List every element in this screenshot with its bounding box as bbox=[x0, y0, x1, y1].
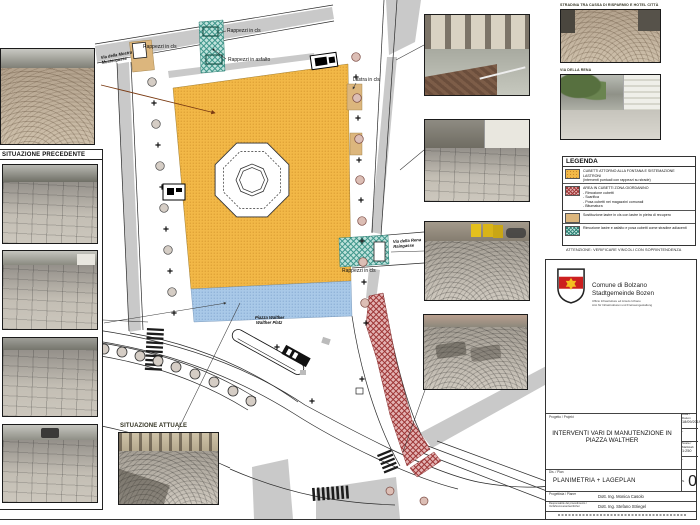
project-title: INTERVENTI VARI DI MANUTENZIONE IN PIAZZ… bbox=[552, 430, 672, 444]
photo-pavement bbox=[3, 265, 97, 329]
designer-row: Progettista / Planer Dott. Ing. Monica C… bbox=[546, 491, 698, 501]
legend-bullet: - Posa cubetti nei magazzini comunali bbox=[583, 200, 643, 204]
photo-right-4-cobbles bbox=[423, 314, 528, 390]
manager-row: Responsabile del procedimento / Verfahre… bbox=[546, 501, 698, 511]
situazione-precedente-title: SITUAZIONE PRECEDENTE bbox=[0, 150, 102, 160]
manager-value: Dott. Ing. Stefano Striegel bbox=[598, 504, 646, 509]
photo-pavement bbox=[1, 68, 94, 144]
project-label: Progetto / Projekt bbox=[549, 415, 574, 419]
photo-topleft-cobbles bbox=[0, 48, 95, 145]
arcade-scene bbox=[425, 15, 529, 49]
date-value: 18/09/2019 bbox=[682, 420, 698, 424]
photo-pavement bbox=[3, 182, 97, 243]
dark-wall-right bbox=[638, 10, 660, 31]
empty-cell-2: - bbox=[682, 457, 698, 468]
legend-item-cubetti: Rimozione lastre e asfalto e posa cubett… bbox=[563, 224, 695, 241]
scale-label: Scala / Maßstab bbox=[682, 442, 698, 449]
photo-scene bbox=[119, 433, 218, 451]
bolzano-coat-of-arms-icon bbox=[556, 268, 586, 304]
drawing-title: PLANIMETRIA + LAGEPLAN bbox=[553, 478, 636, 484]
drawing-label: Dis. / Plan bbox=[549, 470, 564, 474]
date-label: Data / Datum bbox=[682, 413, 698, 420]
number-cell: N. 0 bbox=[682, 469, 698, 491]
legend-note: ATTENZIONE: VERIFICARE VINCOLI CON SOPRI… bbox=[566, 248, 696, 252]
leader-dot bbox=[213, 49, 215, 51]
photo-right-3-bins bbox=[424, 221, 530, 301]
titleblock-divider bbox=[546, 511, 696, 512]
drawing-cell: Dis. / Plan PLANIMETRIA + LAGEPLAN bbox=[546, 469, 681, 491]
legend-item-title: Rimozione lastre e asfalto e posa cubett… bbox=[583, 226, 687, 230]
swatch-red-crosshatch bbox=[565, 186, 580, 196]
photo-stradina bbox=[560, 9, 661, 63]
manager-label: Responsabile del procedimento / Verfahre… bbox=[549, 502, 595, 508]
title-block: Comune di Bolzano Stadtgemeinde Bozen Uf… bbox=[545, 259, 697, 519]
street-via-rena-de: Raingasse bbox=[393, 242, 415, 248]
photo-right-2-pavement bbox=[424, 119, 530, 202]
dark-wall-left bbox=[561, 10, 575, 33]
photo-situazione-attuale bbox=[118, 432, 219, 505]
project-cell: Progetto / Projekt INTERVENTI VARI DI MA… bbox=[546, 413, 681, 469]
photo-precedente-4 bbox=[2, 424, 98, 503]
municipality-name-it: Comune di Bolzano bbox=[592, 282, 654, 290]
trees-bottom-row bbox=[99, 344, 256, 406]
kiosk-symbol-left bbox=[163, 184, 185, 200]
swatch-tan-solid bbox=[565, 213, 580, 223]
green-trees bbox=[561, 75, 606, 101]
number-value: 0 bbox=[688, 473, 697, 491]
label-rappezzi-cls-top: Rappezzi in cls bbox=[227, 28, 261, 34]
legend-bullet: - Rimozione cubetti bbox=[583, 191, 614, 195]
plan-sheet: Rappezzi in cls Rappezzi in cls Rappezzi… bbox=[0, 0, 700, 525]
photo-via-della-rena bbox=[560, 74, 661, 140]
label-lastra-cls: Lastra in cls bbox=[353, 77, 380, 83]
legend-title: LEGENDA bbox=[563, 157, 695, 167]
dash-value: - bbox=[682, 457, 698, 461]
legend-item-sub: (interventi puntuali con rappezzi su str… bbox=[583, 178, 651, 182]
photo-scene bbox=[1, 49, 94, 68]
legend-bullet: - Bitumatura bbox=[583, 204, 603, 208]
legend-box: LEGENDA CUBETTI ATTORNO ALLA FONTANA E S… bbox=[562, 156, 696, 246]
caption-stradina: STRADINA TRA CASSA DI RISPARMIO E HOTEL … bbox=[560, 3, 658, 7]
yellow-dumpsters-icon bbox=[471, 224, 481, 237]
photo-scene bbox=[424, 315, 527, 327]
misc-small-markers bbox=[300, 337, 363, 394]
legend-item-title: CUBETTI ATTORNO ALLA FONTANA E SISTEMAZI… bbox=[583, 169, 675, 178]
legend-item-giordanino: AREA IN CUBETTI ZONA GIORDANINO - Rimozi… bbox=[563, 184, 695, 211]
kiosk-symbol-top bbox=[310, 52, 338, 69]
photo-precedente-2 bbox=[2, 250, 98, 330]
label-rappezzi-cls-right: Rappezzi in cls bbox=[342, 268, 376, 274]
label-rappezzi-cls-topleft: Rappezzi in cls bbox=[143, 44, 177, 50]
designer-label: Progettista / Planer bbox=[549, 492, 576, 496]
scale-cell: Scala / Maßstab 1:250 bbox=[682, 442, 698, 457]
swatch-orange-dots bbox=[565, 169, 580, 179]
white-building bbox=[484, 120, 529, 149]
bicycle-icon bbox=[506, 228, 526, 238]
swatch-teal-hatch bbox=[565, 226, 580, 236]
photo-scene bbox=[3, 338, 97, 350]
photo-pavement bbox=[425, 148, 529, 201]
photo-scene bbox=[3, 165, 97, 182]
photo-right-1-arcade bbox=[424, 14, 530, 96]
office-name-de: Amt für Infrastrukturen und Freiraumgest… bbox=[592, 304, 652, 308]
date-cell: Data / Datum 18/09/2019 bbox=[682, 413, 698, 429]
road-surface bbox=[561, 110, 660, 139]
zebra-crossing-right bbox=[377, 449, 398, 473]
walther-monument-octagon bbox=[215, 143, 289, 217]
footer-fineprint bbox=[558, 514, 686, 516]
caption-via-della-rena: VIA DELLA RENA bbox=[560, 68, 591, 72]
legend-item-title: Sostituzione lastre in cls con lastre in… bbox=[583, 213, 671, 217]
label-piazza-walther-de: Walther Platz bbox=[256, 320, 283, 325]
photo-pavement bbox=[3, 440, 97, 502]
situazione-attuale-title: SITUAZIONE ATTUALE bbox=[120, 423, 187, 429]
photo-precedente-1 bbox=[2, 164, 98, 244]
designer-value: Dott. Ing. Monica Casolo bbox=[598, 494, 644, 499]
number-label: N. bbox=[682, 479, 685, 483]
dark-object bbox=[41, 428, 59, 438]
dash-value: - bbox=[682, 429, 698, 433]
scale-value: 1:250 bbox=[682, 449, 698, 453]
legend-item-lastre: Sostituzione lastre in cls con lastre in… bbox=[563, 211, 695, 224]
photo-precedente-3 bbox=[2, 337, 98, 417]
sheet-bottom-border bbox=[0, 519, 697, 520]
municipality-name-de: Stadtgemeinde Bozen bbox=[592, 290, 654, 298]
legend-item-title: AREA IN CUBETTI ZONA GIORDANINO bbox=[583, 186, 649, 190]
photo-pavement bbox=[3, 350, 97, 416]
legend-item-fountain: CUBETTI ATTORNO ALLA FONTANA E SISTEMAZI… bbox=[563, 167, 695, 184]
label-rappezzi-asfalto: Rappezzi in asfalto bbox=[228, 57, 270, 63]
photo-pavement bbox=[425, 241, 529, 300]
legend-bullet: - Scarifica bbox=[583, 195, 599, 199]
